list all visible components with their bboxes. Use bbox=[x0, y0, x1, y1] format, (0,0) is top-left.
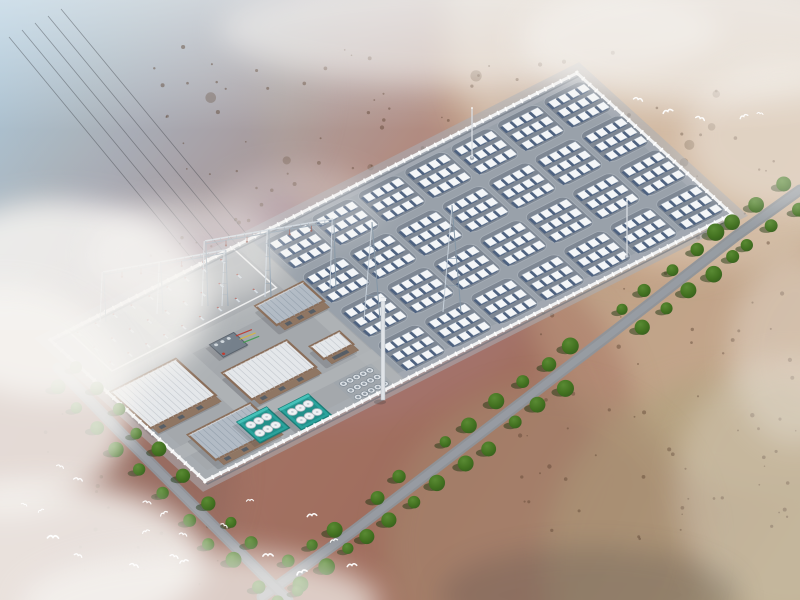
fog-cloud bbox=[215, 167, 385, 243]
aerial-rendering-battery-storage-plant bbox=[0, 0, 800, 600]
